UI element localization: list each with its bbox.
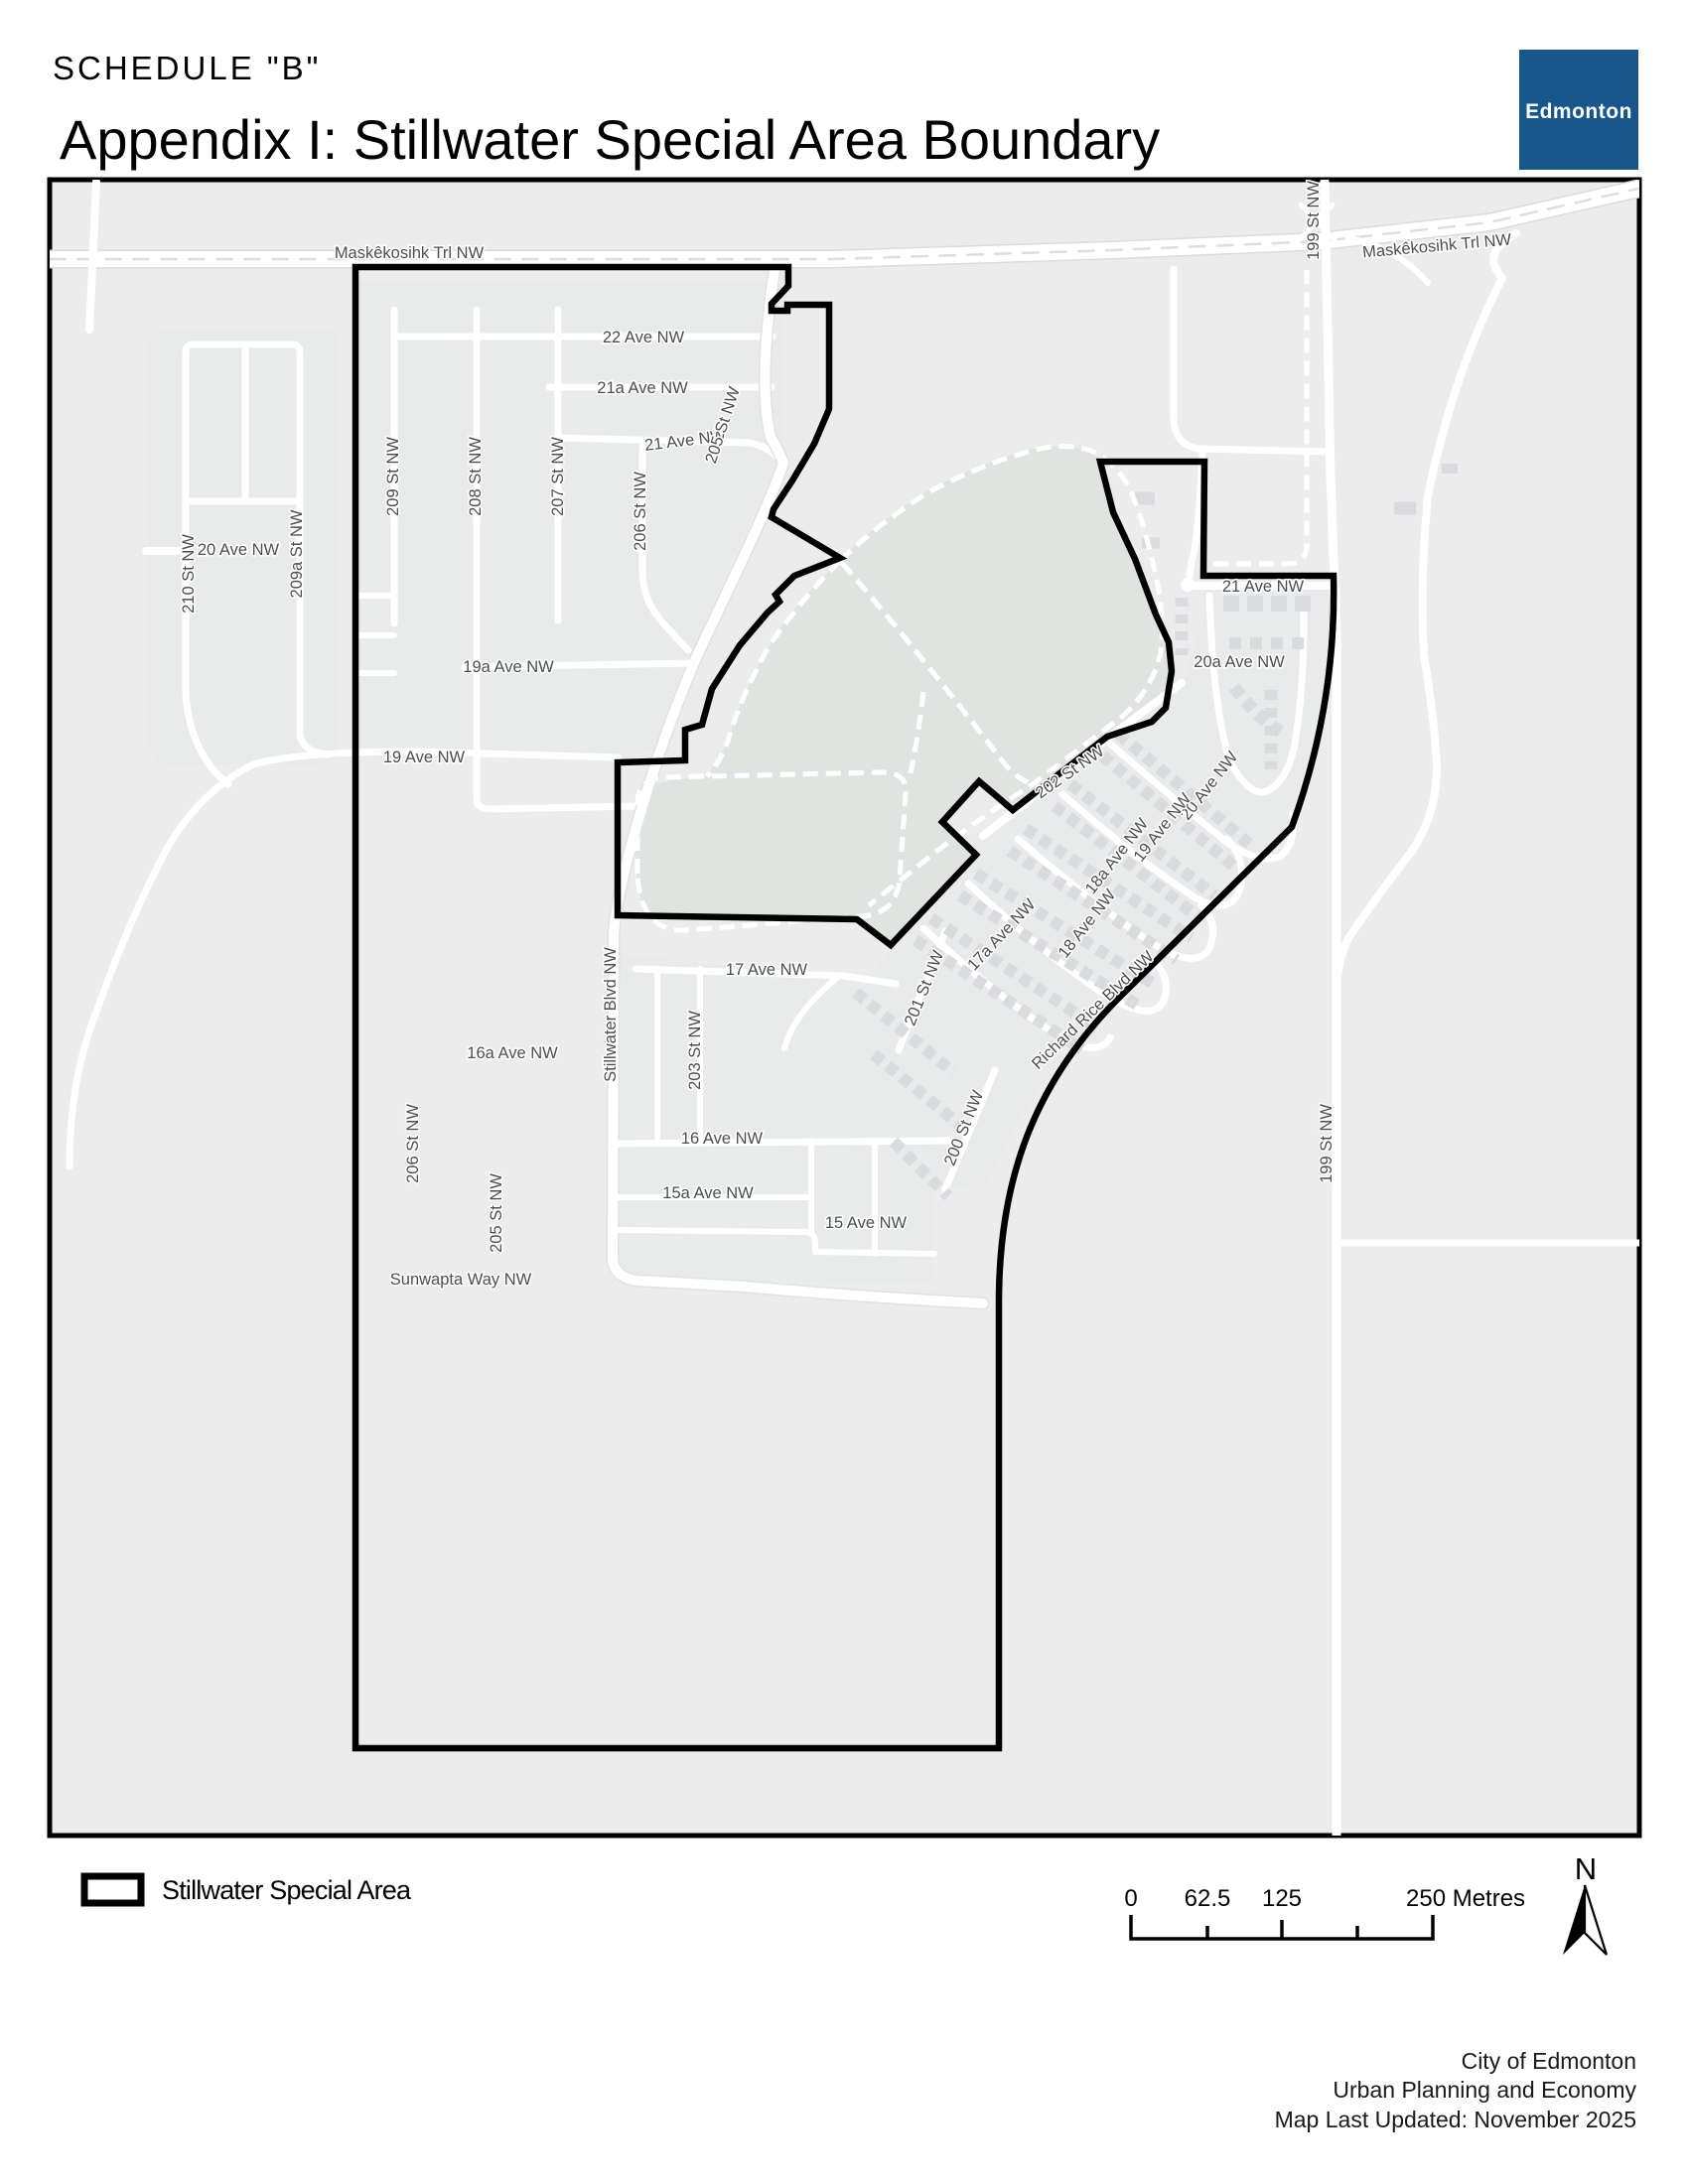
svg-text:62.5: 62.5 bbox=[1185, 1885, 1231, 1912]
svg-text:15a Ave NW: 15a Ave NW bbox=[662, 1184, 754, 1202]
svg-text:250 Metres: 250 Metres bbox=[1406, 1885, 1525, 1912]
svg-text:Appendix I: Stillwater Special: Appendix I: Stillwater Special Area Boun… bbox=[60, 108, 1160, 171]
svg-text:125: 125 bbox=[1262, 1885, 1302, 1912]
svg-text:19a Ave NW: 19a Ave NW bbox=[463, 658, 554, 676]
svg-text:17 Ave NW: 17 Ave NW bbox=[726, 961, 808, 979]
svg-text:210 St NW: 210 St NW bbox=[180, 534, 198, 614]
svg-text:Sunwapta Way NW: Sunwapta Way NW bbox=[390, 1271, 532, 1289]
svg-text:SCHEDULE "B": SCHEDULE "B" bbox=[53, 50, 321, 86]
svg-text:N: N bbox=[1575, 1851, 1597, 1886]
svg-text:15 Ave NW: 15 Ave NW bbox=[825, 1214, 908, 1232]
svg-text:203 St NW: 203 St NW bbox=[686, 1011, 704, 1090]
svg-text:209a St NW: 209a St NW bbox=[288, 509, 306, 598]
svg-text:Urban Planning and Economy: Urban Planning and Economy bbox=[1333, 2077, 1636, 2103]
svg-text:Map Last Updated: November 202: Map Last Updated: November 2025 bbox=[1275, 2107, 1636, 2132]
svg-text:19 Ave NW: 19 Ave NW bbox=[383, 749, 466, 766]
svg-text:0: 0 bbox=[1124, 1885, 1137, 1912]
svg-text:Edmonton: Edmonton bbox=[1525, 100, 1632, 123]
svg-text:206 St NW: 206 St NW bbox=[404, 1104, 422, 1183]
svg-text:205 St NW: 205 St NW bbox=[488, 1173, 505, 1253]
svg-text:208 St NW: 208 St NW bbox=[467, 437, 485, 516]
svg-text:199 St NW: 199 St NW bbox=[1305, 181, 1323, 260]
svg-text:City of Edmonton: City of Edmonton bbox=[1462, 2048, 1636, 2074]
svg-text:207 St NW: 207 St NW bbox=[549, 437, 567, 516]
svg-text:Stillwater Blvd NW: Stillwater Blvd NW bbox=[602, 947, 620, 1082]
svg-text:21 Ave NW: 21 Ave NW bbox=[1222, 578, 1305, 596]
svg-text:22 Ave NW: 22 Ave NW bbox=[603, 329, 685, 346]
svg-text:20a Ave NW: 20a Ave NW bbox=[1194, 653, 1285, 671]
svg-text:16a Ave NW: 16a Ave NW bbox=[467, 1044, 558, 1062]
svg-text:206 St NW: 206 St NW bbox=[632, 472, 649, 551]
svg-text:16 Ave NW: 16 Ave NW bbox=[681, 1130, 764, 1148]
svg-text:21a Ave NW: 21a Ave NW bbox=[597, 379, 688, 397]
svg-text:199 St NW: 199 St NW bbox=[1318, 1104, 1336, 1183]
svg-text:20 Ave NW: 20 Ave NW bbox=[198, 541, 280, 559]
svg-text:209 St NW: 209 St NW bbox=[384, 437, 402, 516]
svg-text:Maskêkosihk Trl NW: Maskêkosihk Trl NW bbox=[335, 244, 485, 262]
svg-text:Stillwater Special Area: Stillwater Special Area bbox=[162, 1875, 412, 1905]
